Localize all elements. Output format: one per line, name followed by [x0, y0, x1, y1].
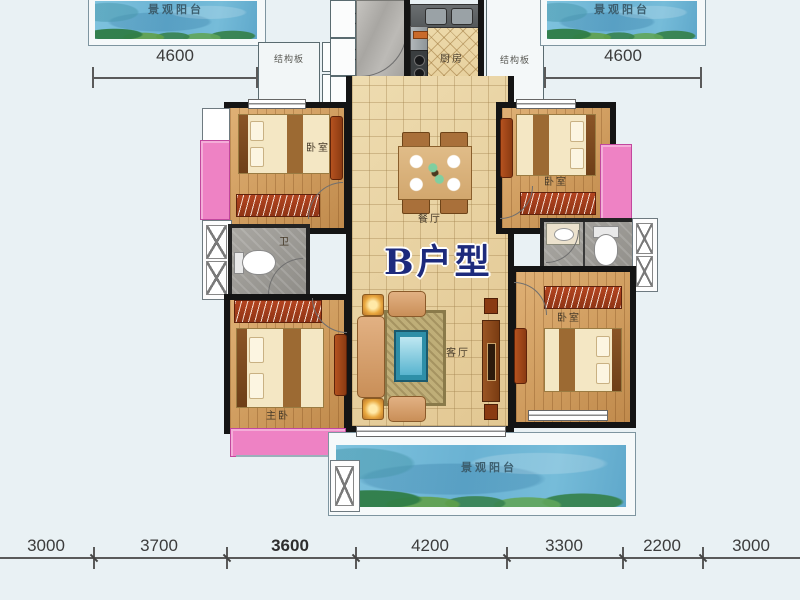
window [516, 99, 576, 109]
window-sill-box [202, 108, 230, 142]
bed-pillow [250, 147, 264, 167]
toilet [242, 250, 276, 275]
dimension-top-right-line [545, 77, 701, 79]
living-room-label: 客厅 [424, 347, 492, 361]
sofa-chair [388, 396, 426, 422]
bed-pillow [596, 336, 610, 357]
balcony-top-right-frame: 景观阳台 [540, 0, 706, 46]
dimension-tick [700, 67, 702, 88]
dimension-bottom-line [0, 557, 800, 559]
dimension-tick [544, 67, 546, 88]
floor-plan: 景观阳台 4600 结构板 厨房 结构板 景观阳台 4600 [0, 0, 800, 600]
bed-runner [559, 329, 575, 391]
wardrobe [544, 286, 622, 309]
dimension-bottom-0: 3000 [6, 536, 86, 556]
ac-unit-box [330, 460, 360, 512]
dining-table [398, 146, 472, 200]
ac-x-mark-icon [206, 225, 227, 259]
kitchen-sink-counter [410, 4, 480, 28]
stair-divider [331, 37, 355, 39]
bay-window-left [200, 140, 230, 220]
bed-pillow [250, 121, 264, 141]
structural-panel-left: 结构板 [258, 42, 320, 106]
speaker [484, 404, 498, 420]
dimension-bottom-3: 4200 [390, 536, 470, 556]
dimension-bottom-1: 3700 [119, 536, 199, 556]
toilet [594, 234, 618, 266]
bedroom-cabinet [500, 118, 513, 178]
dimension-top-left-line [93, 77, 257, 79]
bed-pillow [570, 148, 584, 169]
bedroom-cabinet [514, 328, 527, 384]
tv-cabinet [482, 320, 500, 402]
balcony-top-left-label: 景观阳台 [95, 1, 257, 17]
bathroom-left-label: 卫 [272, 236, 296, 250]
dimension-top-left-value: 4600 [93, 46, 257, 66]
balcony-bottom-frame: 景观阳台 [328, 432, 636, 516]
structural-panel-right-label: 结构板 [487, 53, 543, 66]
bed-runner [283, 329, 301, 407]
ac-x-mark-icon [335, 466, 354, 506]
dimension-bottom-5: 2200 [622, 536, 702, 556]
kitchen-item [413, 31, 428, 39]
floor-lamp [362, 294, 384, 316]
kitchen-sink-basin [451, 8, 473, 25]
bed-pillow [570, 121, 584, 142]
sofa-chair [388, 291, 426, 317]
window [528, 410, 608, 421]
bedroom-top-left-label: 卧室 [284, 142, 352, 156]
bedroom-cabinet [334, 334, 347, 396]
balcony-top-left-frame: 景观阳台 [88, 0, 266, 46]
bed-pillow [249, 373, 264, 399]
bed [544, 328, 622, 392]
dimension-bottom-2: 3600 [250, 536, 330, 556]
bed-headboard [237, 329, 247, 407]
sofa-long [357, 316, 385, 398]
floor-lamp [362, 398, 384, 420]
speaker [484, 298, 498, 314]
bed-headboard [239, 115, 248, 173]
bed-headboard [612, 329, 621, 391]
balcony-bottom-water [336, 445, 626, 507]
bed-runner [533, 115, 549, 175]
dimension-bottom-4: 3300 [524, 536, 604, 556]
dimension-bottom-6: 3000 [711, 536, 791, 556]
coffee-table-glass [400, 337, 422, 375]
window [248, 99, 306, 109]
balcony-top-right-label: 景观阳台 [547, 1, 697, 17]
dimension-top-right-value: 4600 [545, 46, 701, 66]
kitchen-label: 厨房 [424, 53, 480, 67]
bay-window-right [600, 144, 632, 221]
balcony-bottom-label: 景观阳台 [399, 459, 579, 475]
bed-pillow [596, 363, 610, 384]
ac-x-mark-icon [206, 261, 227, 295]
bed [236, 328, 324, 408]
dimension-tick [92, 67, 94, 88]
coffee-table [394, 330, 428, 382]
ac-x-mark-icon [636, 256, 653, 287]
structural-panel-left-label: 结构板 [259, 52, 319, 65]
dining-room-label: 餐厅 [396, 213, 464, 227]
bed-headboard [586, 115, 595, 175]
bed-pillow [249, 337, 264, 363]
bed [516, 114, 596, 176]
ac-x-mark-icon [636, 223, 653, 254]
kitchen-sink-basin [425, 8, 447, 25]
wardrobe [234, 300, 322, 323]
unit-title: B户型 [384, 234, 493, 285]
master-bedroom-label: 主卧 [244, 410, 312, 424]
window [356, 426, 506, 437]
